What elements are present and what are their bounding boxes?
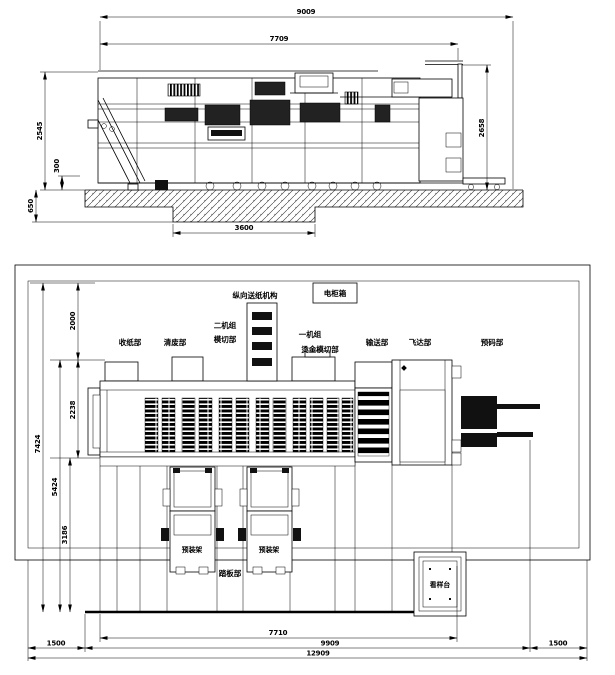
cart-corner bbox=[173, 468, 180, 473]
machine-side-body bbox=[88, 61, 505, 190]
band-lower-strip bbox=[100, 457, 355, 466]
foundation-hatch bbox=[85, 190, 523, 222]
prestack-combs bbox=[461, 396, 540, 447]
ext-2545 bbox=[40, 72, 98, 190]
precart-1 bbox=[161, 467, 224, 574]
heatsink-box-2 bbox=[345, 92, 358, 104]
feed-tower-bar bbox=[252, 312, 272, 320]
tower-port-2 bbox=[446, 158, 461, 172]
cart-foot bbox=[176, 567, 185, 574]
dim-7709: 7709 bbox=[270, 35, 289, 43]
label-unit1-func: 烫金模切部 bbox=[301, 344, 339, 354]
unit-block-6 bbox=[375, 105, 390, 122]
feeder-inner-box bbox=[400, 390, 445, 462]
unit-block-5 bbox=[300, 103, 340, 122]
unit-block-1 bbox=[165, 108, 198, 121]
slat-column bbox=[199, 398, 212, 452]
slat-column bbox=[182, 398, 195, 452]
label-precart-2: 预装架 bbox=[259, 545, 280, 554]
prestack-arm-1 bbox=[497, 404, 540, 409]
feed-tower-bar bbox=[252, 327, 272, 335]
feeder-section bbox=[392, 360, 461, 465]
label-conveyor: 输送部 bbox=[366, 337, 389, 347]
label-stripping: 清废部 bbox=[164, 337, 187, 347]
foot-pad-2 bbox=[128, 184, 138, 190]
label-feeder: 飞达部 bbox=[409, 337, 432, 347]
label-unit2-func: 模切部 bbox=[214, 334, 237, 344]
label-sample-table: 看样台 bbox=[430, 580, 451, 589]
plan-view: 纵向送纸机构 电柜箱 收纸部 清废部 二机组 模切部 一机组 烫金模切部 输送部… bbox=[15, 265, 590, 661]
table-dot bbox=[429, 568, 431, 570]
dim-2545: 2545 bbox=[36, 121, 44, 140]
precart-2 bbox=[238, 467, 301, 574]
longitudinal-feed-tower bbox=[247, 303, 277, 381]
feed-tower-bar bbox=[252, 358, 272, 366]
table-dot bbox=[449, 598, 451, 600]
heatsink-box bbox=[168, 84, 200, 96]
foot-pad-1 bbox=[155, 180, 168, 190]
unit-block-2 bbox=[205, 105, 240, 125]
dim-7710: 7710 bbox=[269, 629, 288, 637]
dim-650: 650 bbox=[27, 199, 35, 213]
cart-side-tab bbox=[163, 489, 170, 506]
lower-unit-core bbox=[211, 130, 242, 136]
slat-column bbox=[145, 398, 158, 452]
cad-drawing: 9009 7709 2545 300 650 2658 3600 bbox=[0, 0, 615, 675]
dim-300: 300 bbox=[53, 159, 61, 173]
prestack-comb-2 bbox=[461, 433, 497, 447]
plan-dimensions-bottom: 7710 9909 1500 1500 12909 bbox=[28, 440, 587, 661]
table-dot bbox=[449, 568, 451, 570]
side-elevation-view: 9009 7709 2545 300 650 2658 3600 bbox=[27, 8, 523, 237]
dim-9909: 9909 bbox=[321, 640, 340, 648]
cover-block-2 bbox=[172, 357, 203, 381]
ramp-stop bbox=[88, 120, 98, 128]
dolly-wheel-2 bbox=[494, 184, 499, 189]
dim-12909: 12909 bbox=[306, 650, 330, 658]
console-screen bbox=[300, 76, 328, 87]
canopy bbox=[425, 61, 463, 65]
dim-7424: 7424 bbox=[34, 434, 42, 453]
cart-foot bbox=[199, 567, 208, 574]
prestack-arm-2 bbox=[497, 432, 533, 437]
unit-block-4 bbox=[255, 82, 285, 95]
cart-lug bbox=[216, 528, 224, 541]
unit-block-3 bbox=[250, 100, 290, 125]
dim-2238: 2238 bbox=[69, 400, 77, 419]
prestack-comb-1 bbox=[461, 396, 497, 429]
slat-column bbox=[327, 398, 339, 452]
dim-3186: 3186 bbox=[61, 525, 69, 544]
dim-2000: 2000 bbox=[69, 311, 77, 330]
cover-block-1 bbox=[105, 362, 138, 381]
conveyor-rollers bbox=[358, 392, 389, 456]
label-footboard: 踏板部 bbox=[219, 568, 242, 578]
slat-column bbox=[236, 398, 249, 452]
dolly-wheel-1 bbox=[468, 184, 473, 189]
label-delivery: 收纸部 bbox=[119, 337, 142, 347]
label-precart-1: 预装架 bbox=[182, 545, 203, 554]
canopy-post bbox=[458, 64, 462, 98]
label-electric-cabinet: 电柜箱 bbox=[324, 288, 347, 298]
delivery-dolly bbox=[463, 178, 505, 190]
foundation-pit bbox=[173, 190, 315, 222]
feeder-tab-3 bbox=[452, 453, 461, 465]
dim-1500-right: 1500 bbox=[549, 640, 568, 648]
feeder-tab-2 bbox=[452, 440, 461, 452]
dim-9009: 9009 bbox=[297, 8, 316, 16]
machine-plan-body bbox=[88, 303, 540, 466]
dim-1500-left: 1500 bbox=[47, 640, 66, 648]
table-dot bbox=[429, 598, 431, 600]
slat-column bbox=[273, 398, 286, 452]
feed-tower-bar bbox=[252, 342, 272, 350]
slat-column bbox=[162, 398, 175, 452]
conveyor-cover bbox=[355, 362, 392, 388]
cart-lower-inner bbox=[174, 515, 211, 535]
dim-2658: 2658 bbox=[478, 118, 486, 137]
label-unit1-name: 一机组 bbox=[299, 329, 322, 339]
conveyor-section bbox=[355, 362, 392, 462]
slab-left bbox=[85, 190, 173, 207]
dim-3600: 3600 bbox=[235, 224, 254, 232]
band-left-tab bbox=[93, 395, 100, 448]
dolly-deck bbox=[463, 178, 505, 184]
feeder-tab-1 bbox=[452, 366, 461, 378]
cart-upper-inner bbox=[174, 471, 211, 507]
tower-port-1 bbox=[446, 133, 461, 147]
slat-column bbox=[342, 398, 353, 452]
dim-5424: 5424 bbox=[51, 477, 59, 496]
cover-block-3 bbox=[292, 357, 335, 381]
label-unit2-name: 二机组 bbox=[214, 320, 237, 330]
top-cabinet-window bbox=[394, 82, 408, 93]
cart-lug bbox=[161, 528, 169, 541]
ext-bottom-dims bbox=[28, 440, 587, 661]
label-longitudinal-feed: 纵向送纸机构 bbox=[233, 290, 278, 300]
slat-column bbox=[256, 398, 269, 452]
slat-column bbox=[219, 398, 232, 452]
slab-right bbox=[315, 190, 523, 207]
cart-corner bbox=[205, 468, 212, 473]
slat-column bbox=[293, 398, 306, 452]
drawing-sheet: 9009 7709 2545 300 650 2658 3600 bbox=[0, 0, 615, 675]
console bbox=[290, 73, 338, 93]
label-prestack: 预码部 bbox=[481, 337, 504, 347]
cart-side-tab bbox=[215, 489, 222, 506]
slat-column bbox=[310, 398, 323, 452]
